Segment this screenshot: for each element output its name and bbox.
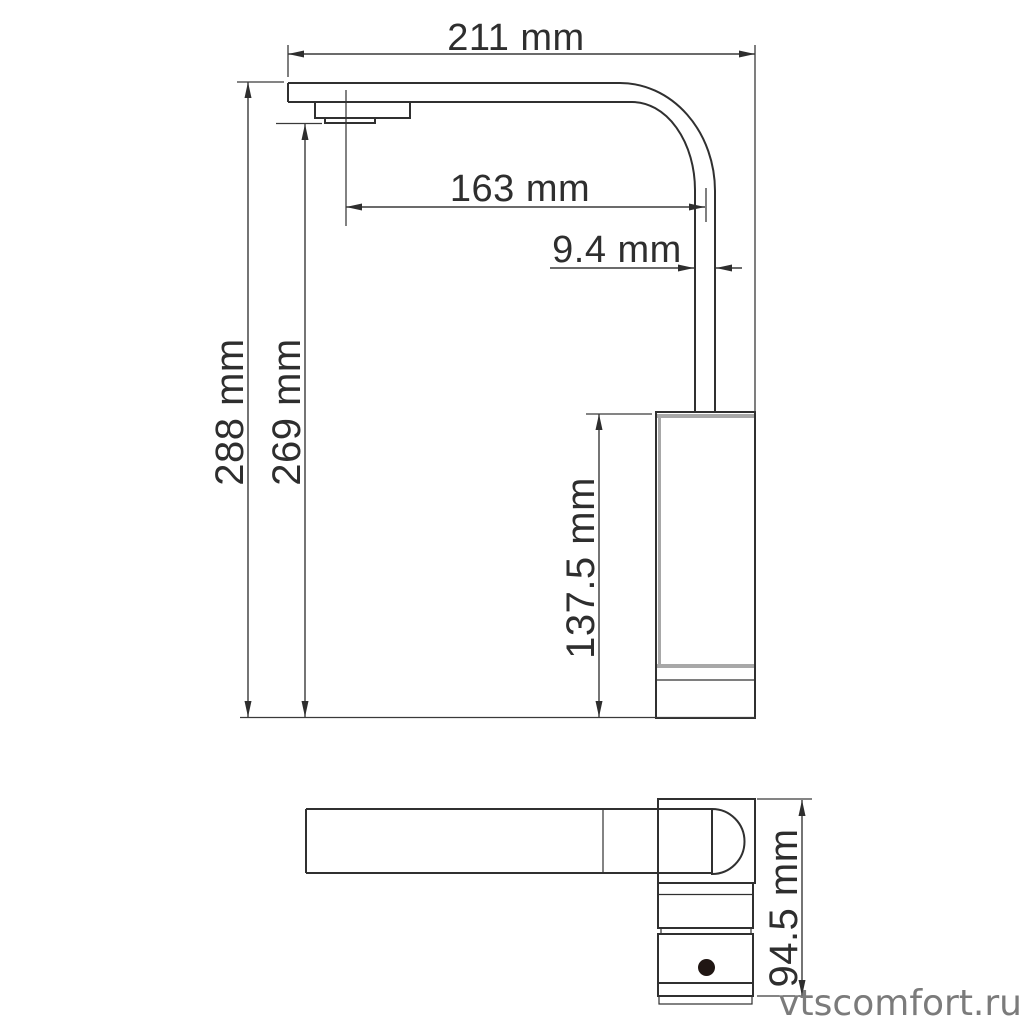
dimension-label-137-5: 137.5 mm — [559, 477, 603, 659]
arrowhead-left — [346, 204, 362, 211]
arrowhead-up — [302, 124, 309, 140]
arrowhead-right — [739, 51, 755, 58]
arrowhead-down — [596, 701, 603, 717]
handle-lever — [306, 809, 712, 873]
watermark-text: vtscomfort.ru — [778, 983, 1022, 1024]
arrowhead-left — [716, 265, 732, 272]
aerator-block — [315, 102, 410, 118]
set-screw-dot — [698, 959, 715, 976]
pivot-housing — [658, 799, 755, 883]
pivot-joint — [712, 809, 745, 874]
arrowhead-up — [245, 82, 252, 98]
body-collar-upper — [658, 883, 753, 928]
arrowhead-down — [302, 701, 309, 717]
dimension-label-269: 269 mm — [265, 338, 309, 486]
dimension-body-height: 137.5 mm — [559, 414, 652, 717]
dimension-pipe-width: 9.4 mm — [550, 229, 742, 272]
arrowhead-up — [596, 414, 603, 430]
arrowhead-down — [245, 701, 252, 717]
dimension-label-9-4: 9.4 mm — [552, 229, 682, 271]
dimension-label-163: 163 mm — [450, 168, 590, 210]
dimension-outlet-height: 269 mm — [265, 124, 322, 718]
arrowhead-right — [689, 204, 705, 211]
body-lower-band — [658, 983, 753, 996]
dimension-label-94-5: 94.5 mm — [762, 828, 806, 987]
technical-drawing-page: 211 mm 163 mm 9.4 mm 288 mm 269 mm — [0, 0, 1027, 1027]
faucet-dimension-diagram: 211 mm 163 mm 9.4 mm 288 mm 269 mm — [0, 0, 1027, 1027]
faucet-body — [656, 412, 755, 718]
body-bottom-strip — [659, 996, 752, 1004]
dimension-handle-length: 94.5 mm — [757, 799, 812, 996]
dimension-spout-span: 211 mm — [288, 17, 755, 412]
arrowhead-left — [288, 51, 304, 58]
dimension-label-288: 288 mm — [208, 338, 252, 486]
top-view — [306, 799, 755, 1004]
dimension-spout-reach: 163 mm — [346, 168, 706, 222]
dimension-label-211: 211 mm — [447, 17, 584, 59]
arrowhead-up — [799, 800, 806, 816]
